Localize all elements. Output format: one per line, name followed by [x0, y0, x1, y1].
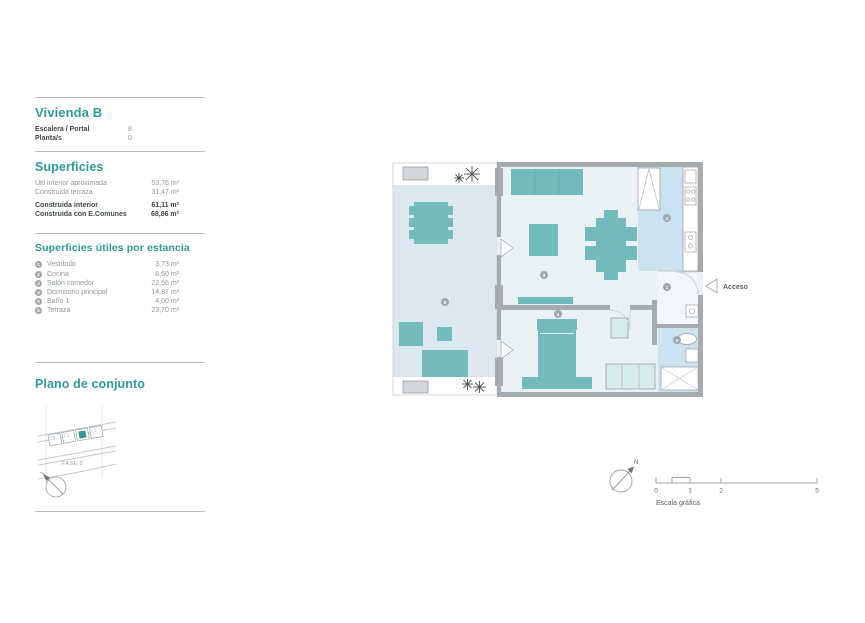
coffee-table	[529, 224, 558, 256]
toilet	[686, 349, 698, 362]
bed-bench	[522, 377, 592, 389]
wardrobe	[606, 364, 655, 389]
terrace-armchair	[399, 322, 423, 346]
wall	[497, 162, 703, 167]
highlighted-unit-marker	[78, 430, 86, 438]
access-arrow-icon	[706, 279, 717, 293]
north-label: N	[634, 460, 638, 466]
dining-chair	[585, 227, 596, 241]
site-buildings	[48, 425, 103, 445]
sideboard	[518, 297, 573, 304]
room-name: Vestíbulo	[47, 260, 155, 269]
terrace-side-table	[437, 327, 452, 341]
superficie-value: 31,47 m²	[151, 189, 179, 198]
superficie-row: Construida terraza 31,47 m²	[35, 189, 205, 198]
terrace-sofa	[422, 350, 468, 377]
list-item: 1 Vestíbulo 3,73 m²	[35, 260, 205, 269]
dining-chair	[585, 246, 596, 260]
chair	[409, 218, 414, 227]
divider-top	[35, 97, 205, 98]
chair	[409, 230, 414, 239]
unit-floors	[497, 162, 703, 397]
superficie-value: 61,11 m²	[151, 202, 179, 211]
info-row-escalera: Escalera / Portal 8	[35, 125, 205, 134]
room-area: 8,60 m²	[155, 270, 179, 279]
room-name: Terraza	[47, 306, 151, 315]
list-item: 6 Terraza 23,70 m²	[35, 306, 205, 315]
room-number-badge: 4	[35, 289, 42, 296]
planta-label: Planta/s	[35, 134, 128, 143]
scale-tick-label: 2	[719, 488, 723, 495]
superficie-row: Construida con E.Comunes 68,86 m²	[35, 211, 205, 220]
room-number-badge: 3	[35, 280, 42, 287]
wall	[657, 324, 703, 328]
chair	[409, 206, 414, 215]
list-item: 5 Baño 1 4,00 m²	[35, 297, 205, 306]
superficie-row: Útil interior aproximada 53,76 m²	[35, 180, 205, 189]
wall	[501, 305, 610, 310]
room-number-badge: 2	[663, 214, 671, 222]
north-compass: N	[610, 460, 638, 492]
room-area: 3,73 m²	[155, 260, 179, 269]
wall-pier	[495, 168, 503, 196]
divider-estancias	[35, 233, 205, 234]
superficie-value: 53,76 m²	[151, 180, 179, 189]
bed-headboard	[537, 319, 577, 330]
list-item: 3 Salón comedor 22,56 m²	[35, 279, 205, 288]
bed	[538, 330, 576, 377]
superficie-label: Construida terraza	[35, 189, 93, 198]
room-number-badge: 5	[673, 336, 681, 344]
scale-tick-label: 5	[815, 488, 819, 495]
conjunto-heading: Plano de conjunto	[35, 377, 205, 391]
scale-tick-label: 1	[688, 488, 692, 495]
list-item: 4 Dormitorio principal 14,87 m²	[35, 288, 205, 297]
floor-plan-area: 1 2 3 4 5 6 Acceso N	[380, 150, 865, 520]
divider-conjunto	[35, 362, 205, 363]
wall	[698, 295, 703, 397]
superficies-heading: Superficies	[35, 160, 205, 174]
access-marker: Acceso	[706, 279, 748, 293]
planter-box	[403, 167, 428, 180]
floor-plan-svg: 1 2 3 4 5 6 Acceso N	[380, 150, 865, 520]
room-name: Dormitorio principal	[47, 288, 151, 297]
room-area: 22,56 m²	[151, 279, 179, 288]
access-label: Acceso	[723, 284, 748, 291]
fase-label: FASE 2	[62, 461, 83, 467]
terrace-table	[414, 202, 448, 244]
dining-chair	[626, 246, 637, 260]
room-area: 4,00 m²	[155, 297, 179, 306]
estancias-list: 1 Vestíbulo 3,73 m² 2 Cocina 8,60 m² 3 S…	[35, 260, 205, 315]
info-row-planta: Planta/s 0	[35, 134, 205, 143]
escalera-label: Escalera / Portal	[35, 125, 128, 134]
room-name: Baño 1	[47, 297, 155, 306]
room-area: 23,70 m²	[151, 306, 179, 315]
chair	[448, 218, 453, 227]
room-number-badge: 1	[663, 283, 671, 291]
room-number-badge: 2	[35, 271, 42, 278]
estancias-heading: Superficies útiles por estancia	[35, 242, 205, 254]
planta-value: 0	[128, 134, 132, 143]
washbasin	[686, 305, 698, 317]
scale-bar	[656, 478, 817, 484]
dining-chair	[626, 227, 637, 241]
room-area: 14,87 m²	[151, 288, 179, 297]
room-number-badge: 6	[35, 307, 42, 314]
scale-bar-labels: 0 1 2 5	[654, 488, 819, 495]
scale-tick-label: 0	[654, 488, 658, 495]
superficie-row: Construida interior 61,11 m²	[35, 202, 205, 211]
room-number-badge: 5	[35, 298, 42, 305]
divider-superficies	[35, 151, 205, 152]
superficie-label: Útil interior aproximada	[35, 180, 107, 189]
escalera-value: 8	[128, 125, 132, 134]
chair	[448, 206, 453, 215]
list-item: 2 Cocina 8,60 m²	[35, 270, 205, 279]
building-outline	[89, 425, 103, 438]
terrace-dining-set	[409, 202, 453, 244]
wall	[698, 162, 703, 272]
superficie-label: Construida con E.Comunes	[35, 211, 127, 220]
room-number-badge: 6	[441, 298, 449, 306]
bedroom-closet	[611, 318, 628, 338]
wall	[497, 392, 703, 397]
superficie-value: 68,86 m²	[151, 211, 179, 220]
divider-bottom	[35, 511, 205, 512]
chair	[448, 230, 453, 239]
room-number-badge: 3	[540, 271, 548, 279]
wall	[652, 300, 657, 345]
room-number-badge: 1	[35, 261, 42, 268]
superficies-table: Útil interior aproximada 53,76 m² Constr…	[35, 180, 205, 219]
kitchen-closet	[638, 168, 660, 210]
wall	[630, 305, 652, 310]
info-panel: Vivienda B Escalera / Portal 8 Planta/s …	[35, 97, 205, 512]
terrace	[393, 163, 497, 395]
room-name: Cocina	[47, 270, 155, 279]
planter-box	[403, 381, 428, 393]
building-outline	[62, 430, 76, 443]
dining-table	[596, 218, 626, 272]
minimap-north-compass	[41, 472, 67, 497]
scale-caption: Escala gráfica	[656, 500, 700, 507]
sofa	[511, 169, 583, 195]
superficie-label: Construida interior	[35, 202, 98, 211]
page-title: Vivienda B	[35, 105, 205, 120]
site-plan-minimap: FASE 2	[38, 403, 118, 505]
room-number-badge: 4	[554, 310, 562, 318]
room-name: Salón comedor	[47, 279, 151, 288]
wall-pier	[495, 358, 503, 386]
building-outline	[48, 433, 62, 446]
